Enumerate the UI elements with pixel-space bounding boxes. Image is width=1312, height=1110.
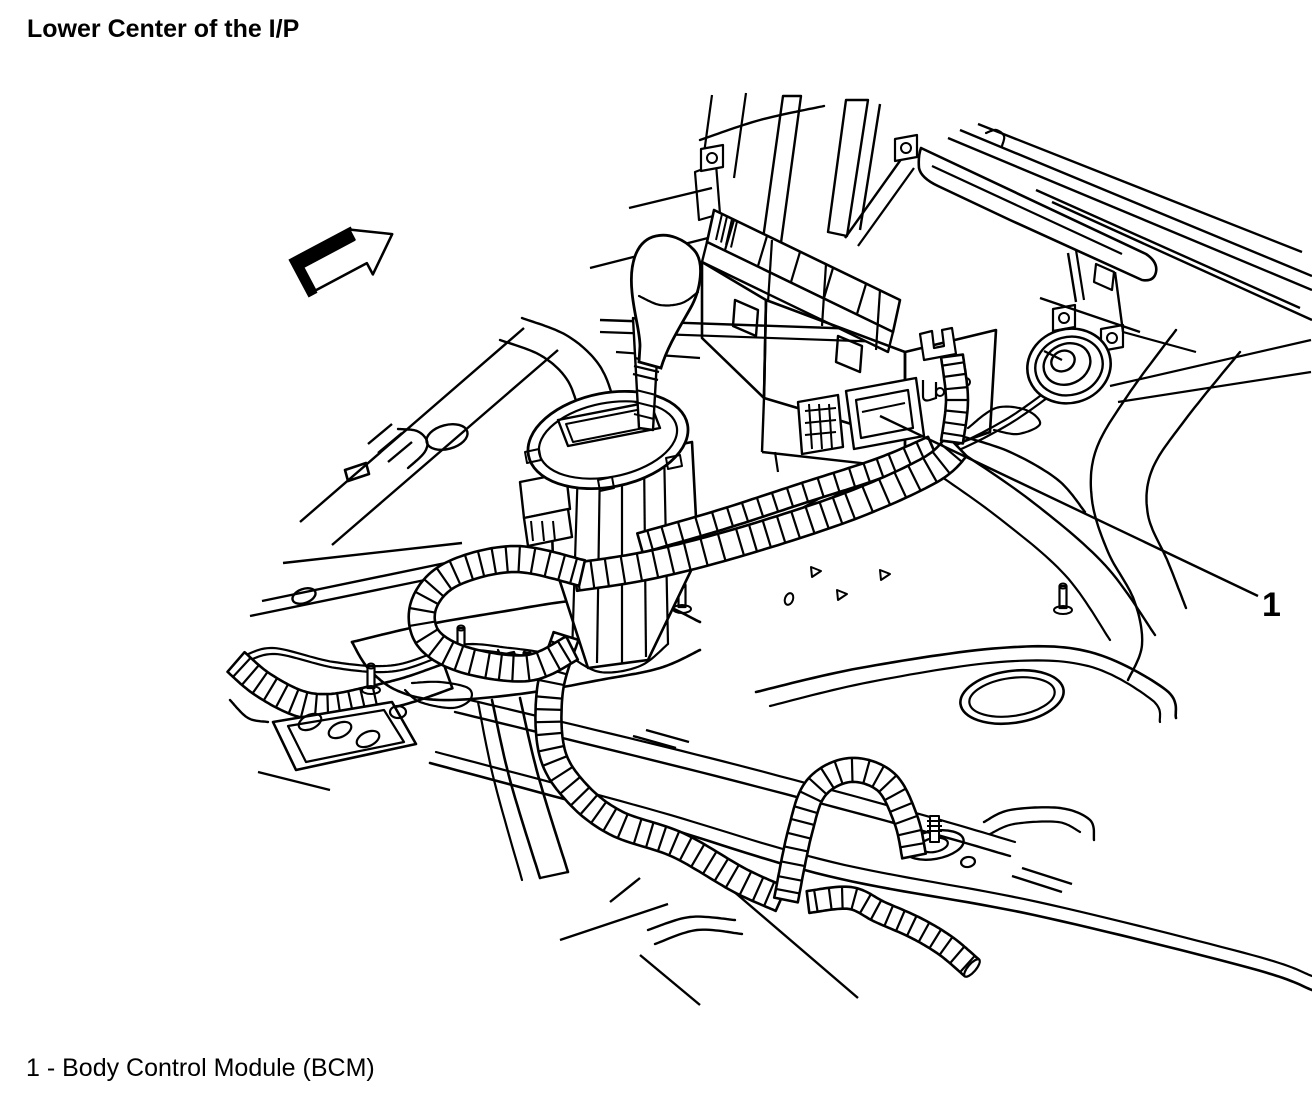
svg-text:1: 1 (1262, 586, 1281, 624)
svg-text:Lower Center of the I/P: Lower Center of the I/P (27, 15, 299, 43)
svg-text:1 - Body Control Module (BCM): 1 - Body Control Module (BCM) (26, 1054, 375, 1082)
